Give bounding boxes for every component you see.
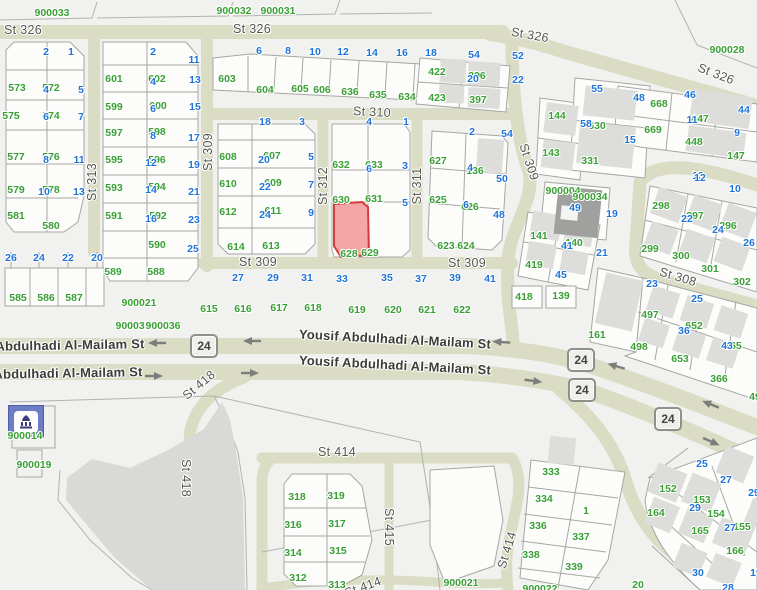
unit-number: 39 [449,272,461,284]
street-name: St 310 [353,104,392,120]
unit-number: 15 [624,134,636,146]
parcel-number[interactable]: 900019 [16,459,51,471]
unit-number: 22 [681,213,693,225]
parcel-number[interactable]: 588 [147,266,165,278]
unit-number: 10 [38,186,50,198]
unit-number: 19 [606,208,618,220]
unit-number: 2 [150,46,156,58]
parcel-number[interactable]: 165 [691,525,709,537]
unit-number: 6 [150,103,156,115]
parcel-number[interactable]: 585 [9,292,27,304]
parcel-number[interactable]: 616 [234,303,252,315]
parcel-number[interactable]: 577 [7,151,25,163]
parcel-number[interactable]: 581 [7,210,25,222]
unit-number: 26 [5,252,17,264]
parcel-number[interactable]: 614 [227,241,245,253]
parcel-number[interactable]: 900021 [443,577,478,589]
parcel-number[interactable]: 317 [328,518,346,530]
parcel-number[interactable]: 634 [398,91,416,103]
unit-number: 14 [366,47,378,59]
unit-number: 21 [188,186,200,198]
unit-number: 19 [750,567,757,579]
unit-number: 24 [712,224,724,236]
parcel-number[interactable]: 610 [219,178,237,190]
parcel-number[interactable]: 143 [542,147,560,159]
parcel-number[interactable]: 316 [284,519,302,531]
unit-number: 48 [493,209,505,221]
unit-number: 5 [78,84,84,96]
unit-number: 27 [232,272,244,284]
parcel-number[interactable]: 161 [588,329,606,341]
unit-number: 23 [188,214,200,226]
parcel-number[interactable]: 623 [437,240,455,252]
unit-number: 2 [469,126,475,138]
parcel-number[interactable]: 579 [7,184,25,196]
unit-number: 37 [415,273,427,285]
unit-number: 26 [743,237,755,249]
street-name: St 418 [180,367,218,402]
unit-number: 5 [402,197,408,209]
parcel-number[interactable]: 622 [453,304,471,316]
parcel-number[interactable]: 419 [525,259,543,271]
unit-number: 10 [729,183,741,195]
street-name: St 312 [316,167,330,205]
parcel-number[interactable]: 635 [369,89,387,101]
road-direction-arrow-left [242,341,262,350]
street-name: St 326 [696,61,736,88]
unit-number: 31 [301,272,313,284]
unit-number: 11 [188,54,199,66]
parcel-number[interactable]: 619 [348,304,366,316]
route-shield: 24 [654,407,682,431]
unit-number: 41 [561,240,573,252]
parcel-number[interactable]: 587 [65,292,83,304]
unit-number: 10 [309,46,321,58]
parcel-number[interactable]: 599 [105,101,123,113]
unit-number: 24 [33,252,45,264]
unit-number: 19 [188,159,200,171]
parcel-number[interactable]: 603 [218,73,236,85]
unit-number: 25 [187,243,199,255]
road-direction-arrow-right [523,371,544,383]
unit-number: 27 [720,474,732,486]
unit-number: 9 [308,207,314,219]
parcel-number[interactable]: 900036 [145,320,180,332]
parcel-number[interactable]: 620 [384,304,402,316]
parcel-number[interactable]: 141 [530,230,548,242]
parcel-number[interactable]: 498 [630,341,648,353]
unit-number: 44 [738,104,750,116]
unit-number: 43 [721,340,733,352]
street-name: St 309 [239,255,277,269]
unit-number: 11 [686,114,697,126]
unit-number: 28 [722,582,734,590]
parcel-number[interactable]: 147 [727,150,745,162]
parcel-number[interactable]: 615 [200,303,218,315]
parcel-number[interactable]: 900022 [522,583,557,590]
unit-number: 20 [258,154,270,166]
street-name: St 418 [179,459,193,497]
unit-number: 17 [188,132,200,144]
parcel-number[interactable]: 586 [37,292,55,304]
unit-number: 20 [467,73,479,85]
unit-number: 1 [68,46,74,58]
unit-number: 2 [43,46,49,58]
unit-number: 33 [336,273,348,285]
parcel-number[interactable]: 608 [219,151,237,163]
parcel-number[interactable]: 629 [361,247,379,259]
unit-number: 13 [189,74,201,86]
parcel-number[interactable]: 575 [2,110,20,122]
parcel-number[interactable]: 900033 [34,7,69,19]
unit-number: 6 [366,163,372,175]
parcel-number[interactable]: 331 [581,155,599,167]
parcel-number[interactable]: 315 [329,545,347,557]
parcel-number[interactable]: 338 [522,549,540,561]
unit-number: 14 [145,184,157,196]
unit-number: 35 [381,272,393,284]
unit-number: 20 [91,252,103,264]
unit-number: 25 [691,293,703,305]
parcel-number[interactable]: 333 [542,466,560,478]
unit-number: 7 [78,111,84,123]
parcel-number[interactable]: 497 [641,309,659,321]
parcel-number[interactable]: 318 [288,491,306,503]
unit-number: 12 [694,172,706,184]
parcel-number[interactable]: 669 [644,124,662,136]
road-name: Abdulhadi Al-Mailam St [0,336,145,354]
unit-number: 1 [403,116,409,128]
unit-number: 16 [145,213,157,225]
parcel-number[interactable]: 334 [535,493,553,505]
street-name: St 326 [4,23,42,37]
unit-number: 9 [734,127,740,139]
unit-number: 3 [299,116,305,128]
unit-number: 6 [256,45,262,57]
unit-number: 27 [724,522,736,534]
unit-number: 16 [396,47,408,59]
parcel-number[interactable]: 900032 [216,5,251,17]
unit-number: 36 [678,325,690,337]
parcel-number[interactable]: 319 [327,490,345,502]
parcel-number[interactable]: 422 [428,66,446,78]
unit-number: 12 [337,46,349,58]
road-name: Yousif Abdulhadi Al-Mailam St [299,326,492,351]
road-direction-arrow-left [491,341,512,351]
unit-number: 18 [425,47,437,59]
parcel-number[interactable]: 621 [418,304,436,316]
unit-number: 50 [496,173,508,185]
route-shield: 24 [568,378,596,402]
parcel-number[interactable]: 617 [270,302,288,314]
parcel-number[interactable]: 606 [313,84,331,96]
parcel-number[interactable]: 423 [428,92,446,104]
parcel-number[interactable]: 604 [256,84,274,96]
parcel-number[interactable]: 573 [8,82,26,94]
parcel-number[interactable]: 49 [749,391,757,403]
road-name: Abdulhadi Al-Mailam St [0,364,143,382]
parcel-number[interactable]: 300 [672,250,690,262]
street-name: St 414 [318,445,356,459]
parcel-number[interactable]: 397 [469,94,487,106]
parcel-number[interactable]: 312 [289,572,307,584]
route-shield: 24 [567,348,595,372]
parcel-number[interactable]: 366 [710,373,728,385]
road-direction-arrow-left [698,400,720,416]
unit-number: 55 [591,83,603,95]
unit-number: 21 [596,247,608,259]
parcel-number[interactable]: 301 [701,263,719,275]
parcel-number[interactable]: 1 [583,505,589,517]
unit-number: 46 [684,89,696,101]
road-name: Yousif Abdulhadi Al-Mailam St [299,352,492,377]
unit-number: 4 [43,84,49,96]
unit-number: 11 [73,154,84,166]
parcel-number[interactable]: 590 [148,239,166,251]
unit-number: 4 [150,76,156,88]
unit-number: 45 [555,269,567,281]
parcel-number[interactable]: 632 [332,159,350,171]
parcel-number[interactable]: 597 [105,127,123,139]
unit-number: 25 [696,458,708,470]
unit-number: 12 [145,157,157,169]
route-shield: 24 [190,334,218,358]
parcel-number[interactable]: 595 [105,154,123,166]
label-layer: 9000339000329000319000285735725755745775… [0,0,757,590]
parcel-number[interactable]: 298 [652,200,670,212]
unit-number: 30 [692,567,704,579]
parcel-number[interactable]: 625 [429,194,447,206]
street-name: St 326 [233,22,271,36]
parcel-number[interactable]: 900021 [121,297,156,309]
parcel-number[interactable]: 299 [641,243,659,255]
parcel-number[interactable]: 900028 [709,44,744,56]
road-direction-arrow-right [702,430,724,446]
parcel-number[interactable]: 20 [632,579,644,590]
unit-number: 29 [689,502,701,514]
parcel-number[interactable]: 144 [548,110,566,122]
unit-number: 54 [501,128,513,140]
parcel-number[interactable]: 139 [552,290,570,302]
parcel-number[interactable]: 302 [733,276,751,288]
parcel-number[interactable]: 593 [105,182,123,194]
parcel-number[interactable]: 339 [565,561,583,573]
unit-number: 6 [463,199,469,211]
parcel-number[interactable]: 613 [262,240,280,252]
unit-number: 8 [150,130,156,142]
unit-number: 18 [259,116,271,128]
parcel-number[interactable]: 612 [219,206,237,218]
parcel-number[interactable]: 624 [457,240,475,252]
parcel-number[interactable]: 618 [304,302,322,314]
road-direction-arrow-left [604,363,626,377]
parcel-number[interactable]: 580 [42,220,60,232]
parcel-number[interactable]: 164 [647,507,665,519]
parcel-number[interactable]: 337 [572,531,590,543]
parcel-number[interactable]: 314 [284,547,302,559]
street-name: St 414 [495,530,519,570]
unit-number: 22 [259,181,271,193]
parcel-number[interactable]: 605 [291,83,309,95]
unit-number: 49 [569,202,581,214]
parcel-number[interactable]: 630 [332,194,350,206]
parcel-number[interactable]: 627 [429,155,447,167]
unit-number: 4 [467,162,473,174]
parcel-number[interactable]: 900031 [260,5,295,17]
unit-number: 22 [62,252,74,264]
unit-number: 15 [189,101,201,113]
street-name: St 309 [201,133,215,171]
parcel-number[interactable]: 900014 [7,430,42,442]
parcel-number[interactable]: 336 [529,520,547,532]
parcel-number[interactable]: 636 [341,86,359,98]
unit-number: 52 [512,50,524,62]
unit-number: 54 [468,49,480,61]
parcel-number[interactable]: 152 [659,483,677,495]
parcel-number[interactable]: 668 [650,98,668,110]
unit-number: 23 [646,278,658,290]
parcel-number[interactable]: 601 [105,73,123,85]
unit-number: 6 [43,111,49,123]
parcel-number[interactable]: 653 [671,353,689,365]
unit-number: 8 [43,154,49,166]
unit-number: 13 [73,186,85,198]
street-name: St 313 [85,163,99,201]
parcel-number[interactable]: 166 [726,545,744,557]
unit-number: 7 [308,179,314,191]
unit-number: 22 [512,74,524,86]
street-name: St 309 [516,142,541,182]
parcel-number[interactable]: 154 [707,508,725,520]
unit-number: 58 [580,118,592,130]
map-canvas[interactable]: 9000339000329000319000285735725755745775… [0,0,757,590]
street-name: St 414 [343,574,383,590]
road-direction-arrow-right [144,368,164,377]
parcel-number[interactable]: 591 [105,210,123,222]
unit-number: 24 [259,209,271,221]
road-direction-arrow-right [240,365,260,374]
road-direction-arrow-left [147,343,167,352]
parcel-number[interactable]: 589 [104,266,122,278]
parcel-number[interactable]: 418 [515,291,533,303]
street-name: St 311 [410,167,424,204]
unit-number: 29 [748,487,757,499]
unit-number: 8 [285,45,291,57]
unit-number: 3 [402,160,408,172]
unit-number: 29 [267,272,279,284]
street-name: St 309 [448,256,486,270]
street-name: St 326 [510,25,550,45]
unit-number: 5 [308,151,314,163]
unit-number: 48 [633,92,645,104]
street-name: St 308 [658,265,698,289]
parcel-number[interactable]: 628 [340,248,358,260]
parcel-number[interactable]: 448 [685,136,703,148]
street-name: St 415 [382,508,396,546]
unit-number: 41 [484,273,496,285]
parcel-number[interactable]: 631 [365,193,383,205]
